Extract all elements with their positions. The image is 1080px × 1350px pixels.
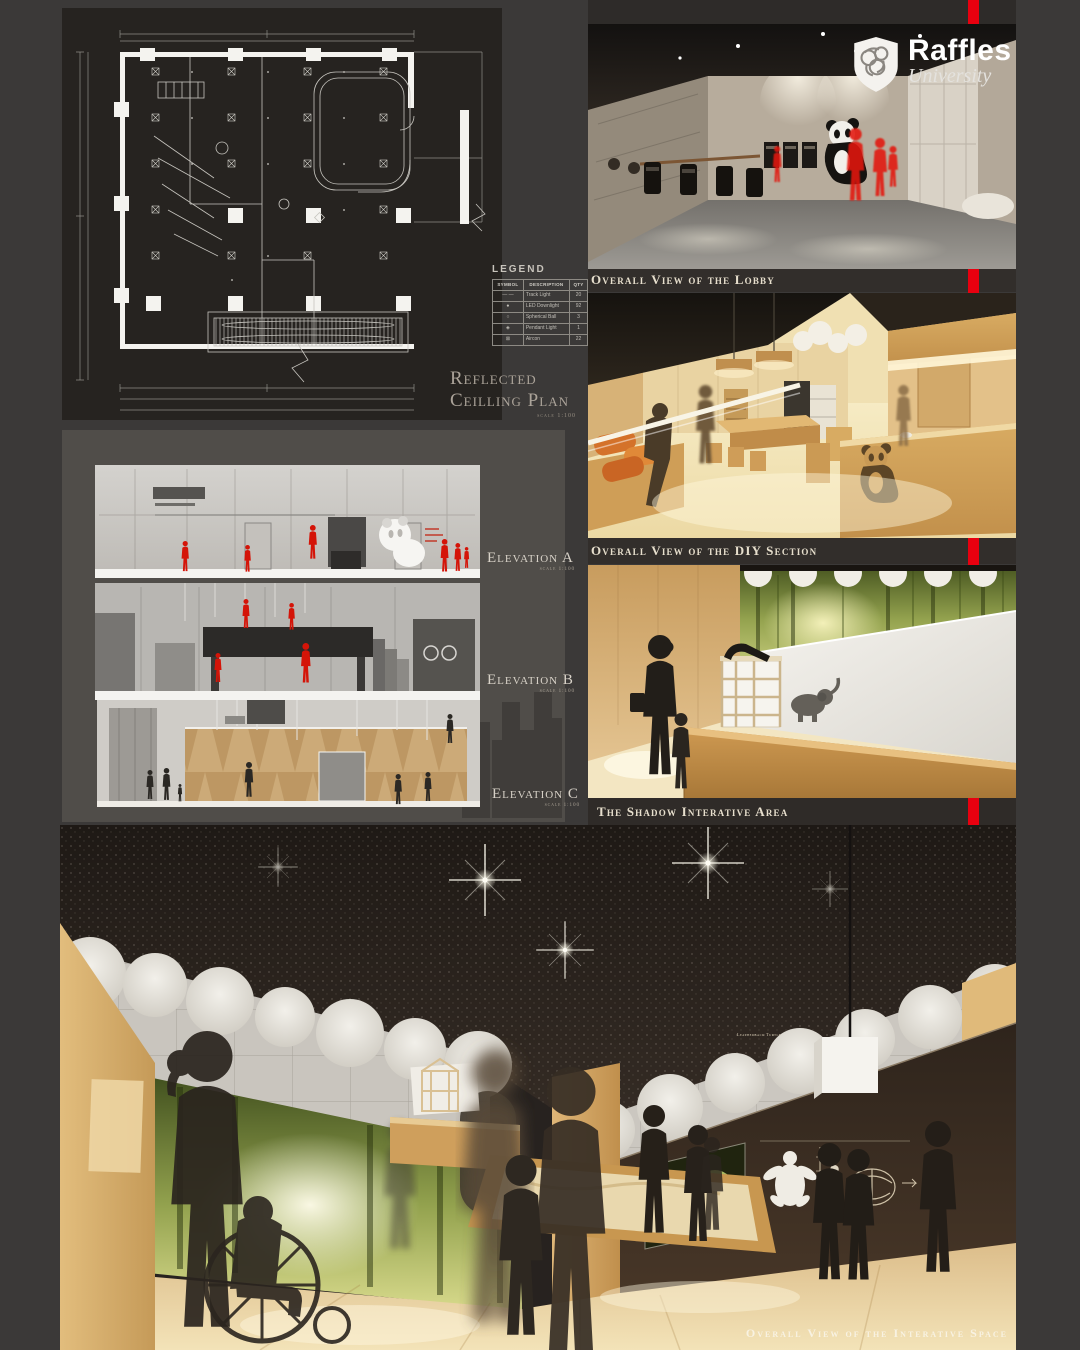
logo-subname: University	[908, 66, 1012, 87]
turtle-display-label: Leatherback Turtle	[737, 1032, 781, 1037]
legend-header-symbol: SYMBOL	[493, 280, 524, 291]
legend-row: ● LED Downlight 92	[493, 302, 588, 313]
logo-name: Raffles	[908, 36, 1012, 66]
render-interactive-space	[60, 825, 1016, 1350]
legend-title: LEGEND	[492, 264, 592, 275]
legend: LEGEND SYMBOL DESCRIPTION QTY — — Track …	[492, 264, 592, 346]
plan-title: Reflected Ceilling Plan scale 1:100	[450, 368, 580, 420]
legend-table: SYMBOL DESCRIPTION QTY — — Track Light 2…	[492, 279, 588, 346]
walls-and-columns	[114, 48, 469, 349]
shield-lion-icon	[852, 36, 900, 94]
dimension-lines	[76, 30, 482, 410]
wall-kiosks	[764, 142, 817, 168]
ceiling-dots	[191, 71, 345, 281]
render-shadow-area	[588, 565, 1016, 798]
raffles-university-logo: Raffles University	[852, 36, 1012, 94]
legend-header-description: DESCRIPTION	[523, 280, 569, 291]
render-diy-section	[588, 293, 1016, 538]
elevation-b-label: Elevation B scale 1:100	[487, 672, 577, 695]
reflected-ceiling-plan-panel	[62, 8, 502, 420]
elevation-c-label: Elevation C scale 1:100	[492, 786, 582, 809]
caption-diy: Overall View of the DIY Section	[588, 538, 1016, 564]
legend-row: ◈ Pendant Light 1	[493, 324, 588, 335]
legend-header-qty: QTY	[570, 280, 588, 291]
legend-row: ○ Spherical Ball 3	[493, 313, 588, 324]
legend-row: — — Track Light 20	[493, 291, 588, 302]
light-symbols	[152, 68, 387, 259]
slide-shape	[962, 193, 1014, 219]
presentation-board: LEGEND SYMBOL DESCRIPTION QTY — — Track …	[0, 0, 1080, 1350]
elevation-a-drawing	[95, 465, 480, 578]
elevation-b-drawing	[95, 583, 480, 700]
cloud-decor	[793, 321, 867, 353]
ceiling-plan-drawing	[62, 8, 502, 420]
top-gap-strip	[588, 0, 1016, 24]
caption-shadow-area: The Shadow Interative Area	[588, 798, 1016, 826]
legend-row: ⊠ Aircon 22	[493, 335, 588, 346]
plan-title-line1: Reflected	[450, 368, 580, 390]
caption-lobby: Overall View of the Lobby	[588, 268, 1016, 292]
elevations-panel	[62, 430, 565, 822]
plan-title-line2: Ceilling Plan	[450, 390, 580, 412]
elevation-a-label: Elevation A scale 1:100	[487, 550, 577, 573]
plan-scale: scale 1:100	[450, 412, 580, 420]
frame-structure	[720, 656, 782, 727]
caption-interactive-space: Overall View of the Interative Space	[746, 1326, 1008, 1341]
elevation-c-drawing	[97, 700, 480, 807]
